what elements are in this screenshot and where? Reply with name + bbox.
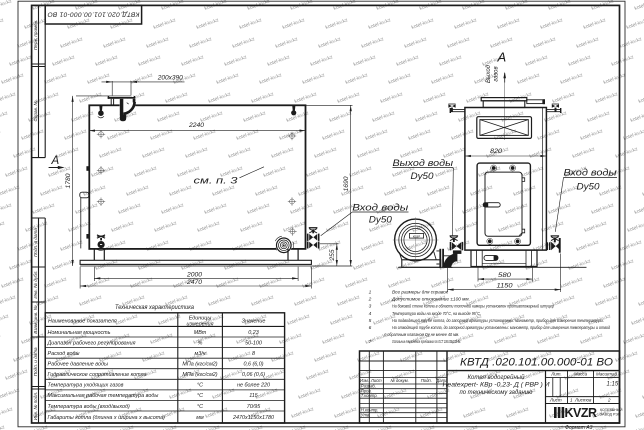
svg-text:2000: 2000 [186,271,203,278]
svg-text:Листов: Листов [574,398,592,403]
svg-text:0,6 (6,0): 0,6 (6,0) [243,362,263,368]
svg-text:измерения: измерения [187,321,214,327]
svg-text:Утв.: Утв. [361,412,371,417]
svg-text:1:15: 1:15 [607,382,619,388]
svg-text:Подп.: Подп. [421,378,432,383]
svg-text:Выход воды: Выход воды [393,158,454,168]
svg-text:1150: 1150 [497,282,514,289]
svg-text:4: 4 [369,311,372,317]
svg-text:А: А [497,49,507,64]
svg-text:°С: °С [197,393,203,399]
svg-text:Температура воды (вход/выход): Температура воды (вход/выход) [48,404,131,410]
svg-text:2470х1150х1780: 2470х1150х1780 [232,415,274,421]
svg-text:см. п. 3: см. п. 3 [194,175,239,186]
svg-text:Лист: Лист [370,378,382,383]
svg-text:50-100: 50-100 [245,340,262,346]
svg-text:ЗАВОД РЭП: ЗАВОД РЭП [600,413,621,417]
svg-text:°С: °С [197,404,203,410]
svg-text:КВТД .020.101.00.000-01 ВО: КВТД .020.101.00.000-01 ВО [460,356,613,368]
svg-text:115: 115 [249,393,259,399]
svg-text:Подп. и дата: Подп. и дата [33,347,38,376]
svg-text:Расход воды: Расход воды [48,351,80,357]
svg-text:Масса: Масса [574,372,588,377]
svg-text:Дата: Дата [435,378,448,383]
svg-text:Перв. примен.: Перв. примен. [33,19,38,50]
svg-text:Рабочее давление воды: Рабочее давление воды [48,362,108,368]
svg-text:А: А [51,155,60,167]
svg-text:2470: 2470 [186,279,203,286]
svg-text:Взам. инв. №: Взам. инв. № [33,305,38,333]
svg-text:Справ. №: Справ. № [33,101,38,122]
svg-text:не более 220: не более 220 [237,383,270,389]
svg-text:Инв. № дубл.: Инв. № дубл. [33,270,38,298]
svg-text:МПа (кгс/см2): МПа (кгс/см2) [182,372,217,378]
svg-text:КОТЕЛЬНЫЙ: КОТЕЛЬНЫЙ [600,408,623,412]
svg-text:Вход воды: Вход воды [352,202,408,212]
svg-text:Техническая характеристика: Техническая характеристика [115,304,195,311]
svg-text:2: 2 [368,297,372,303]
svg-text:3: 3 [369,304,372,310]
svg-text:газов: газов [494,66,500,81]
svg-text:Выход: Выход [486,64,492,83]
svg-text:Вход воды: Вход воды [564,167,617,177]
svg-text:Формат А3: Формат А3 [565,425,593,430]
svg-text:На отводящей трубе котла, до з: На отводящей трубе котла, до запорной ар… [392,324,610,331]
svg-text:2: 2 [607,398,611,403]
svg-text:МВт: МВт [194,330,207,336]
svg-text:№ докум.: № докум. [390,378,408,383]
svg-text:255: 255 [330,249,336,262]
svg-text:КВТД.020.101.00.000-01 ВО: КВТД.020.101.00.000-01 ВО [47,11,139,18]
svg-text:м3/ч: м3/ч [195,351,206,357]
svg-text:Heatexpert- КВр -0,23- Д ( РВР: Heatexpert- КВр -0,23- Д ( РВР ) И [443,381,551,388]
svg-text:Лит.: Лит. [550,372,562,377]
svg-text:Значение: Значение [242,319,266,325]
svg-text:Наименование показателя: Наименование показателя [48,319,117,325]
svg-text:На боковой стене котла в облас: На боковой стене котла в области топочно… [392,303,554,310]
svg-text:Котел водогрейный: Котел водогрейный [468,374,526,381]
svg-text:Диапазон рабочего регулировани: Диапазон рабочего регулирования [47,340,136,346]
svg-text:КВЗР: КВЗР [413,234,420,238]
svg-text:%: % [198,340,203,346]
svg-text:Dy50: Dy50 [577,181,600,191]
svg-text:6: 6 [369,325,372,331]
svg-text:Гидравлическое сопротивление к: Гидравлическое сопротивление котла [48,372,147,378]
svg-text:Т.контр.: Т.контр. [361,393,378,398]
svg-text:с обратным клапаном Dy не мен: с обратным клапаном Dy не менее 40 мм. [384,332,459,338]
svg-text:70/95: 70/95 [247,404,261,410]
svg-text:5: 5 [369,318,372,324]
svg-text:KVZR: KVZR [565,406,598,420]
svg-text:На подводящей трубе котла, до: На подводящей трубе котла, до запорной а… [392,317,604,324]
svg-text:0,23: 0,23 [248,330,259,336]
svg-text:Подп. и дата: Подп. и дата [33,228,38,257]
svg-text:МПа (кгс/см2): МПа (кгс/см2) [182,362,217,368]
svg-text:580: 580 [498,272,512,279]
svg-text:1690: 1690 [344,176,350,192]
svg-text:7: 7 [369,339,372,345]
svg-text:8: 8 [252,351,255,357]
svg-text:мм: мм [196,415,204,421]
svg-text:по техническому заданию: по техническому заданию [460,389,533,396]
svg-text:Допустимое отклонение ±100 мм: Допустимое отклонение ±100 мм. [391,297,470,303]
svg-text:1780: 1780 [65,173,72,188]
svg-text:°С: °С [197,383,203,389]
svg-text:Dy50: Dy50 [411,171,434,181]
svg-text:Лист: Лист [549,398,562,403]
svg-text:Остальные технические требован: Остальные технические требования по ОСТ … [392,339,461,345]
svg-text:Инв. № подл.: Инв. № подл. [33,392,38,421]
svg-text:Номинальная мощность: Номинальная мощность [48,330,111,336]
svg-text:Масштаб: Масштаб [596,372,617,377]
svg-text:820: 820 [490,149,503,155]
svg-text:Максимальная рабочая температу: Максимальная рабочая температура воды [48,393,159,399]
svg-text:1: 1 [369,290,372,296]
svg-text:Изм.: Изм. [360,378,369,383]
svg-text:Габариты котла (длинна х ширин: Габариты котла (длинна х ширина х высота… [48,415,166,421]
svg-text:0,06 (0,6): 0,06 (0,6) [242,372,265,378]
svg-text:Температура воды на входе 70°: Температура воды на входе 70°С, на выход… [392,311,481,317]
svg-text:2240: 2240 [188,122,205,129]
svg-text:200х390: 200х390 [157,75,183,82]
svg-text:Dy50: Dy50 [369,215,392,225]
svg-text:Все размеры для справок: Все размеры для справок [392,290,449,296]
svg-text:Температура уходящих газов: Температура уходящих газов [48,383,124,389]
